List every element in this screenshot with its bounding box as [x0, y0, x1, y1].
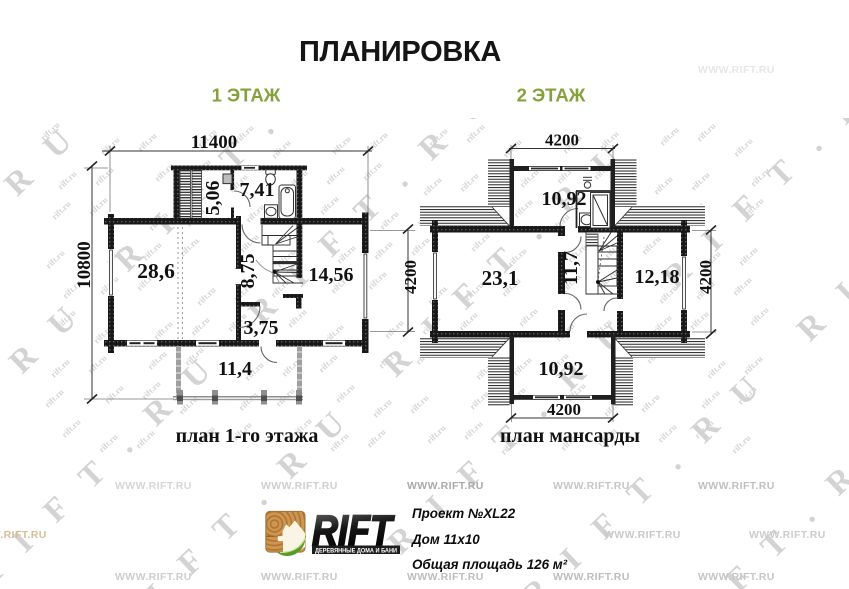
- svg-text:10,92: 10,92: [539, 358, 584, 380]
- svg-text:11400: 11400: [191, 132, 237, 153]
- svg-text:план мансарды: план мансарды: [500, 425, 640, 447]
- svg-text:WWW.RIFT.RU: WWW.RIFT.RU: [261, 571, 338, 583]
- svg-text:11,7: 11,7: [560, 251, 582, 285]
- svg-text:8,75: 8,75: [237, 254, 259, 289]
- svg-text:WWW.RIFT.RU: WWW.RIFT.RU: [407, 571, 484, 583]
- svg-text:WWW.RIFT.RU: WWW.RIFT.RU: [553, 480, 630, 492]
- svg-text:ДЕРЕВЯННЫЕ ДОМА И БАНИ: ДЕРЕВЯННЫЕ ДОМА И БАНИ: [315, 547, 397, 554]
- svg-text:28,6: 28,6: [137, 259, 175, 283]
- svg-text:11,4: 11,4: [218, 358, 252, 380]
- svg-text:план 1-го этажа: план 1-го этажа: [176, 425, 319, 447]
- svg-text:23,1: 23,1: [482, 266, 519, 290]
- svg-text:4200: 4200: [545, 131, 579, 150]
- svg-text:Проект №XL22: Проект №XL22: [412, 506, 516, 521]
- svg-text:WWW.RIFT.RU: WWW.RIFT.RU: [407, 480, 484, 492]
- svg-text:10800: 10800: [74, 241, 95, 289]
- svg-text:WWW.RIFT.RU: WWW.RIFT.RU: [698, 571, 775, 583]
- svg-text:Общая площадь 126 м²: Общая площадь 126 м²: [412, 557, 568, 572]
- svg-text:10,92: 10,92: [542, 188, 587, 210]
- svg-text:4200: 4200: [547, 400, 581, 419]
- svg-text:12,18: 12,18: [635, 266, 680, 288]
- svg-text:3,75: 3,75: [244, 317, 279, 339]
- svg-text:WWW.RIFT.RU: WWW.RIFT.RU: [261, 480, 338, 492]
- svg-text:1 ЭТАЖ: 1 ЭТАЖ: [212, 85, 281, 106]
- svg-text:14,56: 14,56: [309, 264, 354, 286]
- svg-text:2 ЭТАЖ: 2 ЭТАЖ: [517, 85, 586, 106]
- svg-text:WWW.RIFT.RU: WWW.RIFT.RU: [698, 480, 775, 492]
- svg-text:ПЛАНИРОВКА: ПЛАНИРОВКА: [299, 36, 501, 68]
- svg-text:WWW.RIFT.RU: WWW.RIFT.RU: [115, 571, 192, 583]
- svg-text:WWW.RIFT.RU: WWW.RIFT.RU: [0, 529, 47, 541]
- svg-text:5,06: 5,06: [202, 181, 224, 216]
- svg-text:7,41: 7,41: [240, 179, 275, 201]
- svg-text:4200: 4200: [696, 260, 715, 294]
- svg-text:4200: 4200: [401, 260, 420, 294]
- svg-text:WWW.RIFT.RU: WWW.RIFT.RU: [553, 571, 630, 583]
- svg-text:WWW.RIFT.RU: WWW.RIFT.RU: [698, 64, 775, 76]
- svg-text:WWW.RIFT.RU: WWW.RIFT.RU: [604, 529, 681, 541]
- svg-text:WWW.RIFT.RU: WWW.RIFT.RU: [749, 529, 826, 541]
- svg-text:WWW.RIFT.RU: WWW.RIFT.RU: [115, 480, 192, 492]
- svg-text:Дом 11x10: Дом 11x10: [411, 532, 480, 547]
